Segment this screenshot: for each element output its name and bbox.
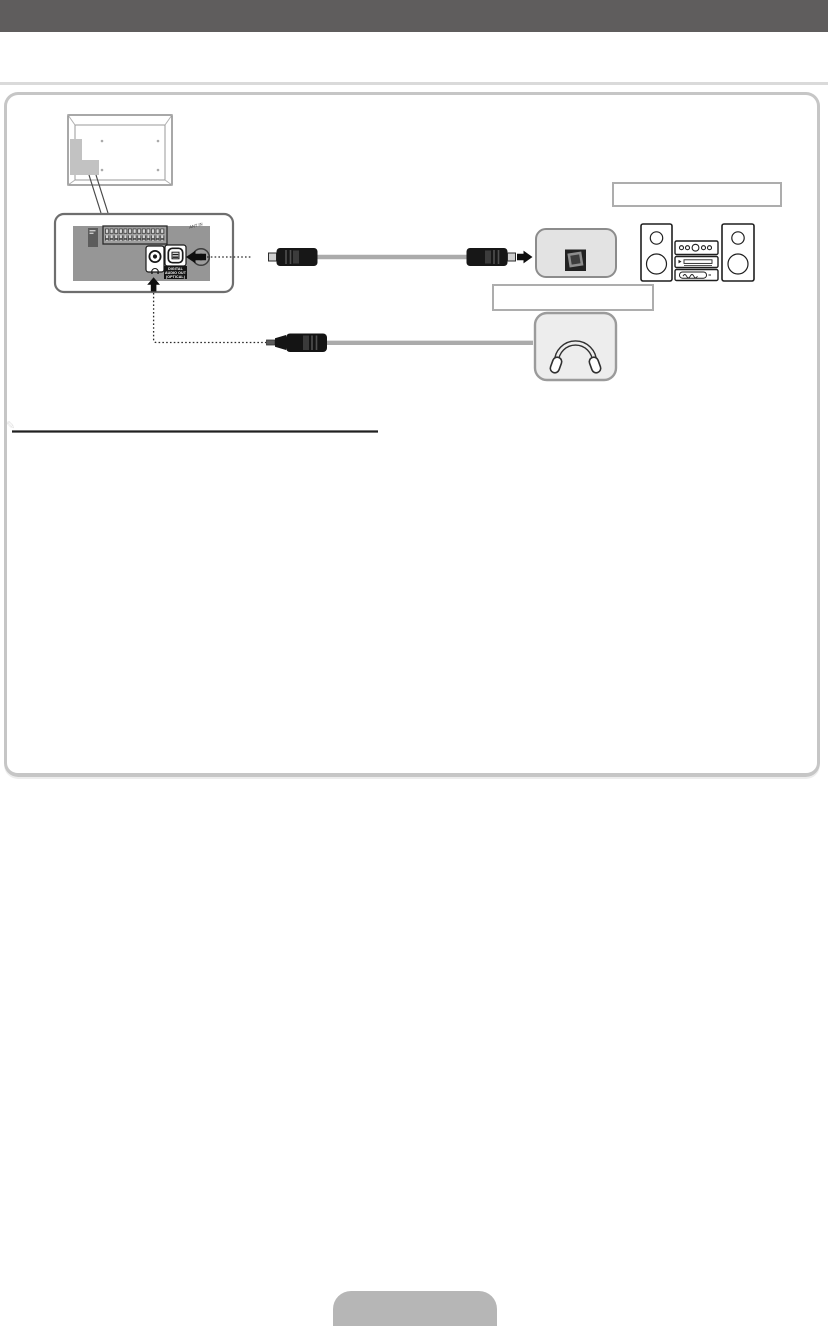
digital-audio-out-label: DIGITAL AUDIO OUT (OPTICAL) [164,266,187,279]
note-pencil-icon: ✎ [6,419,15,432]
audio-system-caption-box [612,182,782,207]
optical-jack-caption-box [492,284,654,311]
header-separator-line [0,82,828,85]
page-header-bar [0,0,828,32]
footer-page-tab [333,1291,497,1326]
